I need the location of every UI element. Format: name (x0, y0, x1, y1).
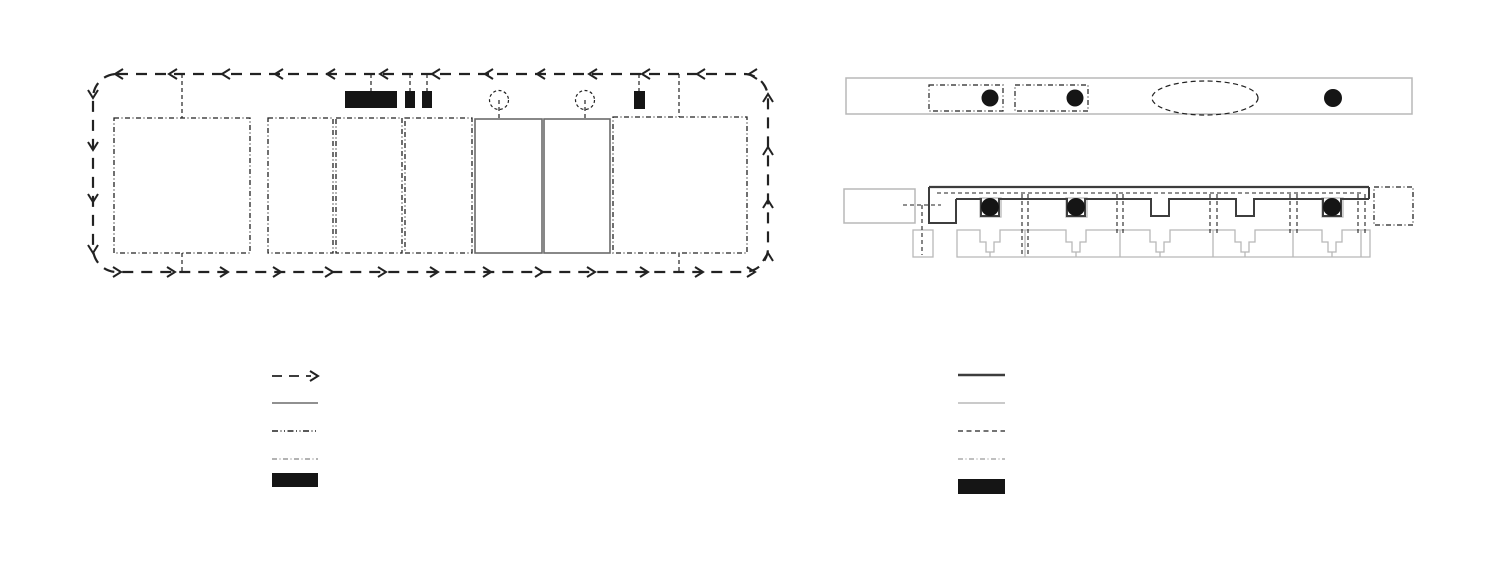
flow-arrow-left (88, 245, 98, 253)
zone-room-3 (336, 118, 402, 253)
flow-arrow-bottom (113, 267, 121, 277)
flow-arrow-top (697, 69, 705, 79)
right-plan-strip-diagram (846, 78, 1412, 115)
flow-arrow-top (432, 69, 440, 79)
solid-block-large (345, 91, 397, 108)
plan-column-2 (1067, 90, 1084, 107)
solid-block-small-2 (422, 91, 432, 108)
section-small-box (913, 230, 933, 257)
flow-arrow-right (763, 147, 773, 155)
section-slab-underside (956, 199, 1369, 216)
plan-oval-zone (1152, 81, 1258, 115)
plan-column-1 (982, 90, 999, 107)
flow-arrow-bottom (325, 267, 333, 277)
zone-room-2 (268, 118, 333, 253)
section-dash-dot-box (1374, 187, 1413, 225)
architectural-diagram-page (0, 0, 1500, 563)
core-room-2 (544, 119, 610, 253)
section-lower-profile (957, 230, 1370, 257)
zone-room-1 (114, 118, 250, 253)
plan-column-3 (1324, 89, 1342, 107)
zone-room-4 (405, 118, 472, 253)
flow-arrow-top (749, 69, 757, 79)
zone-room-5 (613, 117, 747, 253)
right-section-diagram (844, 187, 1413, 257)
section-column-2 (1067, 198, 1085, 216)
right-legend (958, 375, 1005, 494)
flow-arrow-right (763, 253, 773, 261)
solid-block-small-3 (634, 91, 645, 109)
left-legend (272, 371, 318, 487)
left-plan-circulation-diagram (88, 69, 773, 277)
solid-block-small-1 (405, 91, 415, 108)
flow-arrow-top (642, 69, 650, 79)
core-room-1 (475, 119, 542, 253)
legend-sample-solid-fill (958, 479, 1005, 494)
section-side-box (844, 189, 915, 223)
flow-arrow-bottom (535, 267, 543, 277)
diagram-canvas (0, 0, 1500, 563)
legend-sample-solid-fill (272, 473, 318, 487)
legend-sample-flow-arrowhead (310, 371, 318, 381)
flow-arrow-top (222, 69, 230, 79)
section-column-3 (1323, 198, 1341, 216)
section-column-1 (981, 198, 999, 216)
